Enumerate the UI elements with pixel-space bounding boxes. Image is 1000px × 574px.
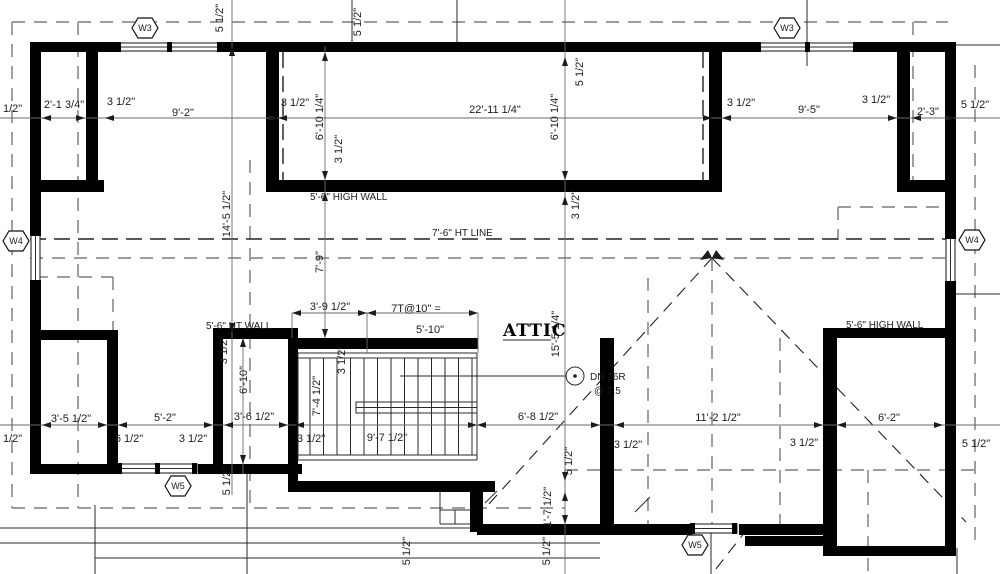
dim-label: 7'-9" [314,251,326,273]
dim-label: 11'-2 1/2" [695,412,741,424]
dim-label: 6'-10" [238,366,250,394]
dim-label: 5 1/2" [352,8,364,36]
dim-label: 3 1/2" [281,97,309,109]
stair-width-dim-label: 3'-9 1/2" [310,301,350,313]
dim-label: 9'-2" [172,107,194,119]
dim-label: 3'-5 1/2" [51,413,91,425]
stair-down-symbol-dot [573,374,577,378]
window-tag-w3-left: W3 [132,18,158,38]
dim-label: 6 1/2" [115,433,143,445]
note-ht-line: 7'-6" HT LINE [432,228,493,239]
dim-label: 2'-3" [917,106,939,118]
extension-lines [0,0,1000,574]
room-label-attic: ATTIC [502,321,566,341]
wall-height-dash-path [283,52,703,180]
dim-label: 22'-11 1/4" [469,104,521,116]
dim-label: 3'-6 1/2" [234,411,274,423]
dim-label: 2'-1 3/4" [44,99,84,111]
floor-plan-drawing: W3 W3 W4 W4 W5 W5 5 1/2" 2'-1 3/4" 3 1/2… [0,0,1000,574]
dim-label: 5 1/2" [961,99,989,111]
reference-lines [0,0,1000,574]
dim-label: 5 1/2" [563,447,575,475]
dim-label: 3 1/2" [727,97,755,109]
dim-label: 9'-7 1/2" [367,432,407,444]
window-w5-bottom [690,523,737,534]
dim-label: 6'-8 1/2" [518,411,558,423]
dim-label: 5 1/2" [221,467,233,495]
dim-label: 1'-7 1/2" [542,487,554,527]
dim-label: 7'-4 1/2" [311,376,323,416]
note-ht-wall-left: 5'-6" HT WALL [206,321,272,332]
tag-label: W5 [688,540,702,550]
dim-label: 3 1/2" [790,437,818,449]
dim-line-paths [0,0,1000,574]
dim-label: 3 1/2" [333,135,345,163]
window-w4-right [945,234,956,286]
dim-label: 9'-5" [798,104,820,116]
dim-label: 3 1/2" [570,191,582,219]
stair-down-label: DN 16R [590,372,626,383]
stair-riser-label: @ 7.5 [594,386,621,397]
window-tag-w5-bottom: W5 [682,535,708,555]
tag-label: W5 [171,481,185,491]
dim-label: 5 1/2" [0,433,22,445]
dim-label: 5'-2" [154,412,176,424]
dim-label: 5 1/2" [962,438,990,450]
dim-label: 5 1/2" [541,537,553,565]
dim-label: 5 1/2" [401,537,413,565]
dim-label: 3 1/2" [179,433,207,445]
tag-label: W4 [965,235,979,245]
dim-label: 3 1/2" [297,433,325,445]
note-high-wall-center: 5'-6" HIGH WALL [310,192,388,203]
window-tag-w5-left: W5 [165,476,191,496]
tag-label: W3 [138,23,152,33]
window-w3-left [116,42,222,52]
window-tags: W3 W3 W4 W4 W5 W5 [3,18,985,555]
dim-label: 5 1/2" [0,103,22,115]
dim-label: 6'-2" [878,412,900,424]
dim-label: 3 1/2" [336,346,348,374]
tag-label: W4 [9,236,23,246]
dim-label: 6'-10 1/4" [314,94,326,140]
window-tag-w3-right: W3 [774,18,800,38]
dim-label: 3 1/2" [614,439,642,451]
dim-label: 6'-10 1/4" [549,94,561,140]
dimension-labels-horizontal: 5 1/2" 2'-1 3/4" 3 1/2" 9'-2" 3 1/2" 22'… [0,94,990,451]
dim-label: 5 1/2" [574,58,586,86]
window-tag-w4-right: W4 [959,230,985,250]
dimension-lines [0,0,1000,574]
stair-run-label: 5'-10" [416,324,444,336]
height-line-group [30,239,950,258]
dim-label: 3 1/2" [107,96,135,108]
dim-label: 3 1/2" [862,94,890,106]
note-high-wall-right: 5'-6" HIGH WALL [846,320,924,331]
roof-valley-right [712,258,966,522]
window-tag-w4-left: W4 [3,231,29,251]
window-w3-right [756,42,858,52]
attic-floor-plan: W3 W3 W4 W4 W5 W5 5 1/2" 2'-1 3/4" 3 1/2… [0,0,1000,574]
dim-label: 3 1/2" [218,336,230,364]
window-w5-left [117,463,197,474]
dim-label: 14'-5 1/2" [221,191,233,237]
dim-label: 5 1/2" [214,4,226,32]
stair-treads-label: 7T@10" = [391,303,441,315]
tag-label: W3 [780,23,794,33]
window-w4-left [30,231,41,285]
